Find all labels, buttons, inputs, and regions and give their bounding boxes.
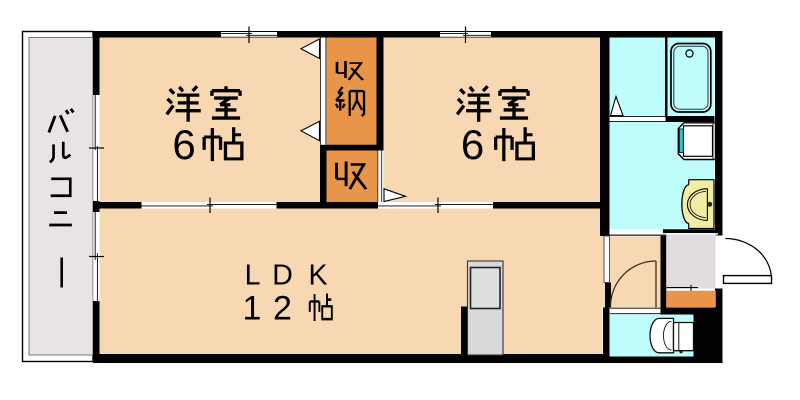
svg-text:1: 1 <box>243 290 262 328</box>
svg-text:K: K <box>308 260 327 292</box>
svg-text:2: 2 <box>273 290 292 328</box>
svg-text:6: 6 <box>172 121 195 168</box>
svg-text:6: 6 <box>461 121 484 168</box>
svg-text:D: D <box>272 260 293 292</box>
svg-text:L: L <box>245 260 261 292</box>
